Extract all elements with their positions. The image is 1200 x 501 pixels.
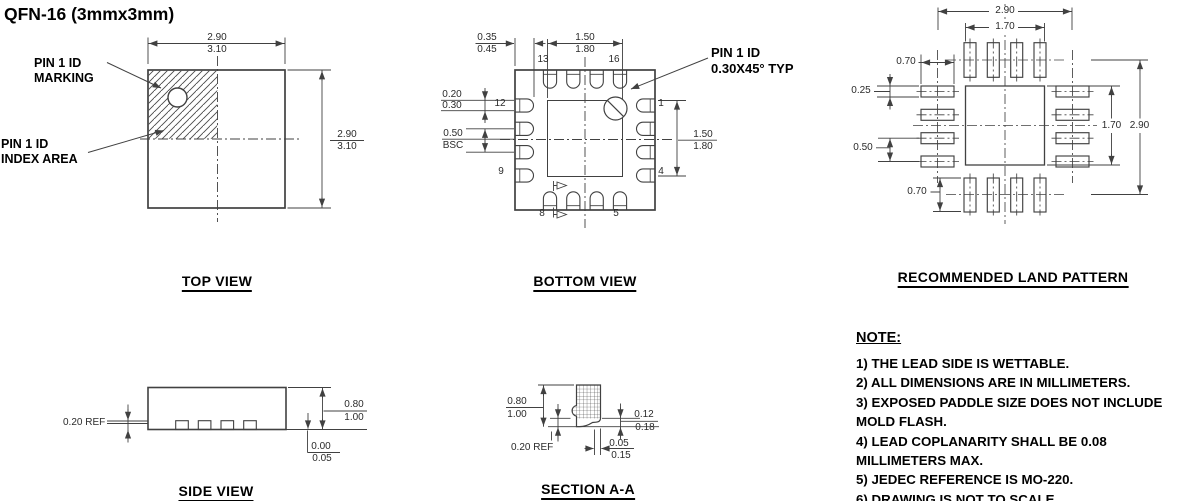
- qfn16-package-drawing: QFN-16 (3mmx3mm) PIN 1 ID MARKING PIN 1 …: [0, 0, 1200, 501]
- note-item-2: 2) ALL DIMENSIONS ARE IN MILLIMETERS.: [856, 373, 1188, 392]
- top-view-label: TOP VIEW: [182, 273, 252, 292]
- top-height-dim-min: 2.90: [332, 130, 362, 140]
- land-paddle-height-dim: 1.70: [1098, 121, 1125, 131]
- top-width-dim-min: 2.90: [203, 33, 231, 43]
- land-paddle-width-dim: 1.70: [992, 22, 1018, 32]
- bottom-view-drawing: [441, 38, 717, 228]
- note-item-1: 1) THE LEAD SIDE IS WETTABLE.: [856, 354, 1188, 373]
- pin1-id-chamfer-callout-line2: 0.30X45° TYP: [711, 61, 794, 77]
- paddle-width-dim-min: 1.50: [571, 33, 599, 43]
- pin1-marking-callout-line2: MARKING: [34, 71, 94, 86]
- pad-width-dim-max: 0.30: [440, 101, 464, 111]
- land-outer-width-dim: 2.90: [992, 6, 1018, 16]
- side-height-dim-min: 0.80: [341, 400, 367, 410]
- notes-list: 1) THE LEAD SIDE IS WETTABLE. 2) ALL DIM…: [856, 354, 1188, 501]
- pin1-marking-callout: PIN 1 ID MARKING: [34, 56, 94, 85]
- pin-5-number: 5: [610, 209, 622, 219]
- section-lead-tip-dim-max: 0.18: [632, 423, 658, 433]
- land-pitch-dim: 0.50: [850, 143, 876, 153]
- pin1-index-callout: PIN 1 ID INDEX AREA: [1, 137, 78, 166]
- side-view-label: SIDE VIEW: [178, 483, 253, 501]
- section-foot-length-dim-max: 0.15: [608, 451, 634, 461]
- section-lead-thickness-dim: 0.20 REF: [511, 443, 553, 453]
- pin-16-number: 16: [607, 55, 621, 65]
- land-pad-width-dim: 0.25: [848, 86, 874, 96]
- land-pattern-label: RECOMMENDED LAND PATTERN: [898, 269, 1129, 288]
- section-view-label: SECTION A-A: [541, 481, 635, 500]
- top-view-drawing: [88, 38, 364, 223]
- section-foot-length-dim-min: 0.05: [606, 439, 632, 449]
- pin-8-number: 8: [535, 209, 549, 219]
- lead-width-dim-max: 0.45: [473, 45, 501, 55]
- lead-width-dim-min: 0.35: [473, 33, 501, 43]
- pin-1-number: 1: [656, 99, 666, 109]
- note-item-5: 5) JEDEC REFERENCE IS MO-220.: [856, 470, 1188, 489]
- top-width-dim-max: 3.10: [203, 45, 231, 55]
- side-standoff-dim-min: 0.00: [308, 442, 334, 452]
- land-outer-height-dim: 2.90: [1126, 121, 1153, 131]
- pitch-dim-bsc: BSC: [441, 141, 465, 151]
- paddle-width-dim-max: 1.80: [571, 45, 599, 55]
- land-pad-length-left-dim: 0.70: [893, 57, 919, 67]
- page-title: QFN-16 (3mmx3mm): [4, 4, 174, 25]
- section-height-dim-max: 1.00: [504, 410, 530, 420]
- pin1-id-chamfer-callout-line1: PIN 1 ID: [711, 45, 794, 61]
- note-item-3: 3) EXPOSED PADDLE SIZE DOES NOT INCLUDE …: [856, 393, 1188, 432]
- pitch-dim-value: 0.50: [441, 129, 465, 139]
- pad-width-dim-min: 0.20: [440, 90, 464, 100]
- side-standoff-dim-max: 0.05: [309, 454, 335, 464]
- pin-12-number: 12: [492, 99, 508, 109]
- top-height-dim-max: 3.10: [332, 142, 362, 152]
- pin-4-number: 4: [656, 167, 666, 177]
- bottom-view-label: BOTTOM VIEW: [533, 273, 636, 292]
- pin-9-number: 9: [495, 167, 507, 177]
- pin1-index-callout-line2: INDEX AREA: [1, 152, 78, 167]
- side-height-dim-max: 1.00: [341, 413, 367, 423]
- pin1-index-callout-line1: PIN 1 ID: [1, 137, 78, 152]
- notes-heading: NOTE:: [856, 330, 901, 346]
- section-lead-tip-dim-min: 0.12: [631, 410, 657, 420]
- land-pad-length-bottom-dim: 0.70: [904, 187, 930, 197]
- pin1-id-chamfer-callout: PIN 1 ID 0.30X45° TYP: [711, 45, 794, 76]
- paddle-height-dim-min: 1.50: [689, 130, 717, 140]
- side-lead-thickness-dim: 0.20 REF: [63, 418, 105, 428]
- paddle-height-dim-max: 1.80: [689, 142, 717, 152]
- note-item-6: 6) DRAWING IS NOT TO SCALE.: [856, 490, 1188, 501]
- section-height-dim-min: 0.80: [504, 397, 530, 407]
- note-item-4: 4) LEAD COPLANARITY SHALL BE 0.08 MILLIM…: [856, 432, 1188, 471]
- pin-13-number: 13: [536, 55, 550, 65]
- pin1-marking-callout-line1: PIN 1 ID: [34, 56, 94, 71]
